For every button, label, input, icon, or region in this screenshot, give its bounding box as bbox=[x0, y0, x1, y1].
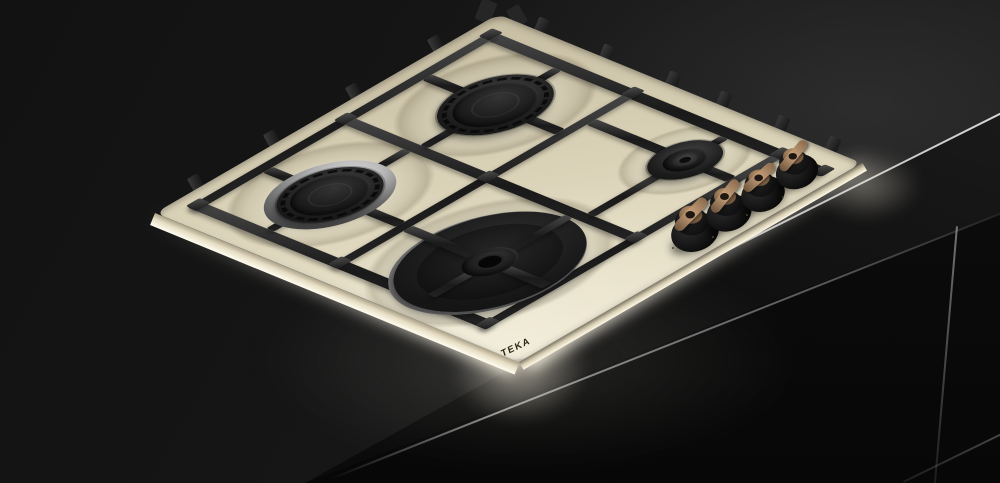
knob-center-hole bbox=[754, 174, 763, 181]
knob-center-hole bbox=[789, 153, 797, 160]
knob-center-hole bbox=[685, 211, 695, 218]
screw-dot bbox=[672, 247, 674, 249]
screw-dot bbox=[746, 214, 748, 216]
control-knob-4 bbox=[767, 138, 827, 198]
screw-dot bbox=[712, 236, 714, 238]
knob-center-hole bbox=[720, 193, 729, 200]
kitchen-scene: TEKA bbox=[0, 0, 1000, 483]
screw-dot bbox=[782, 196, 784, 198]
